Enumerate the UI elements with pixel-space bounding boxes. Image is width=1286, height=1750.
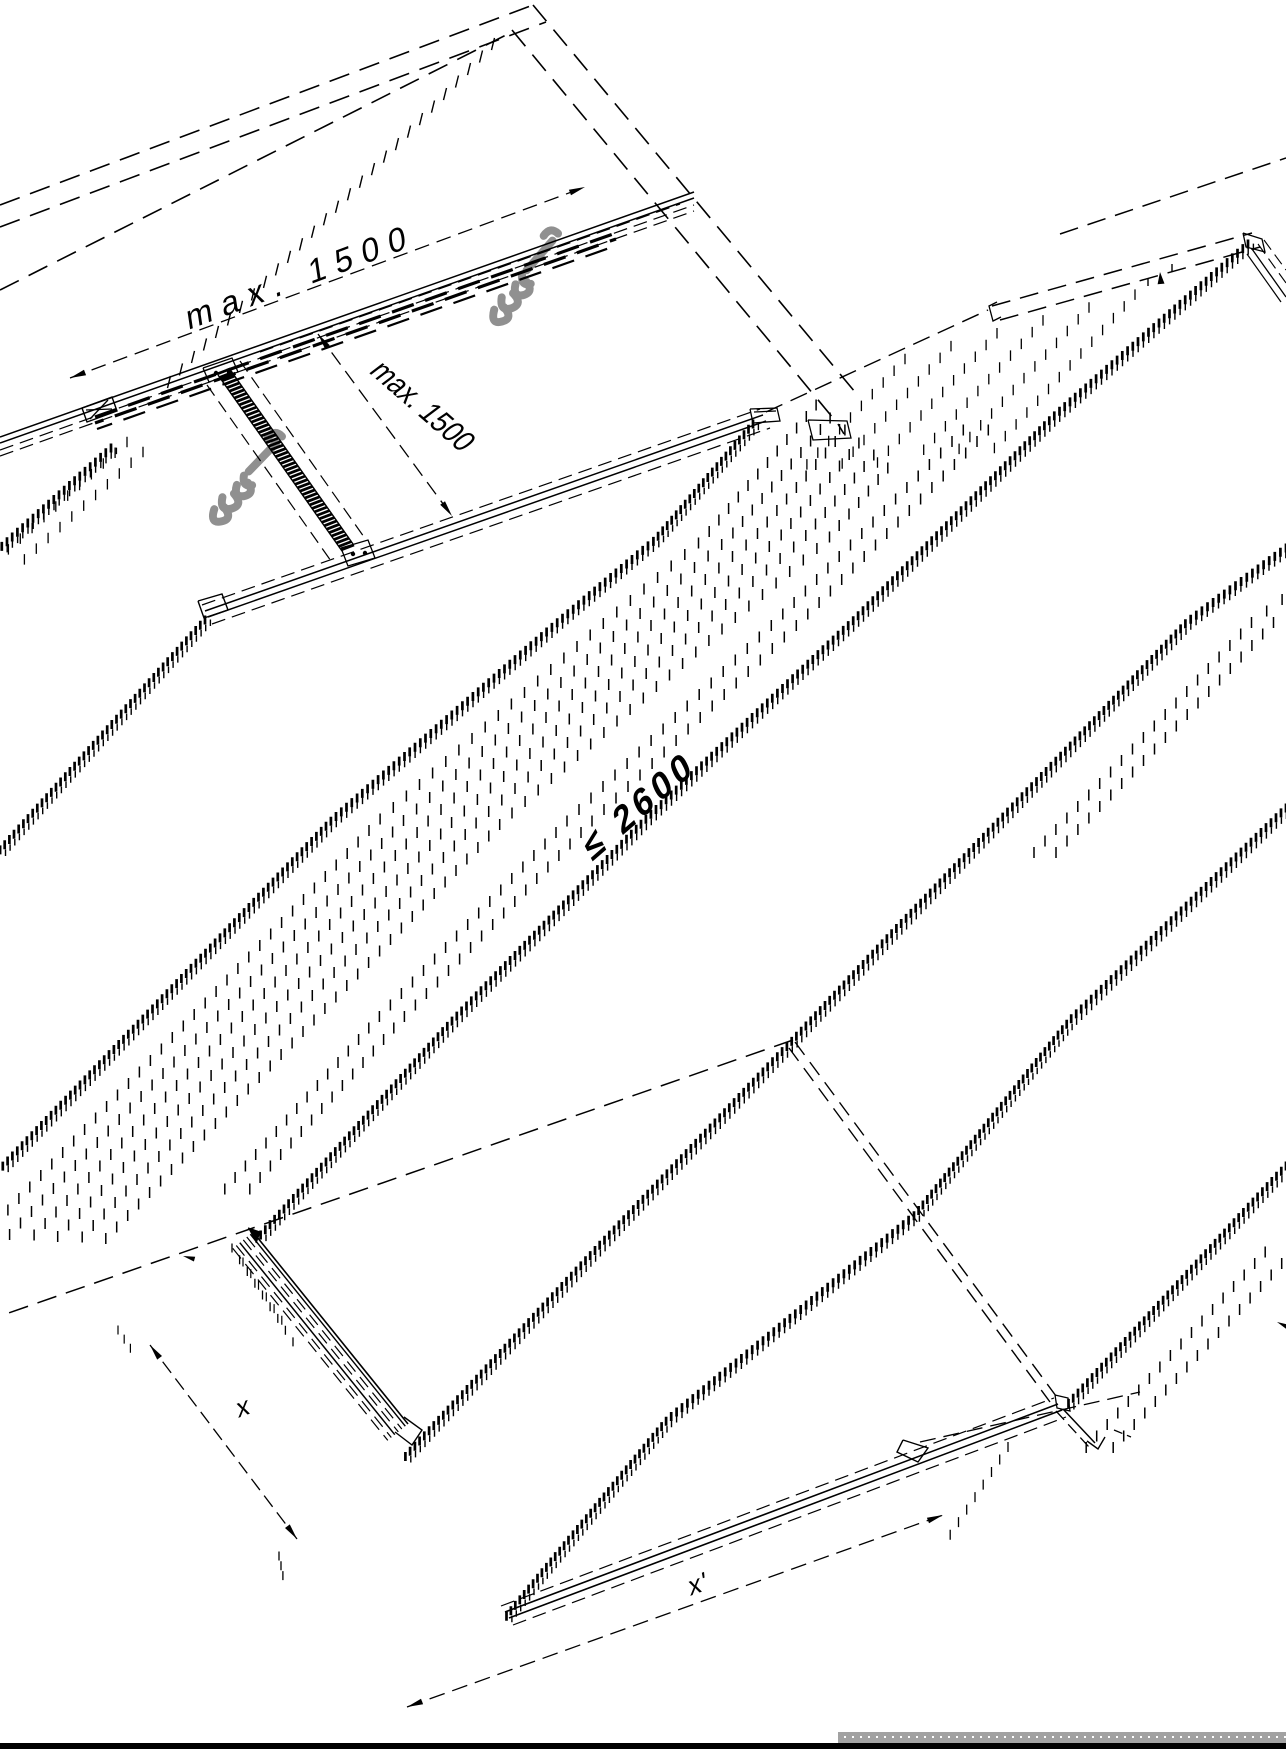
svg-text:x': x' xyxy=(687,1565,710,1602)
svg-text:x: x xyxy=(235,1389,252,1424)
svg-text:max. 1500: max. 1500 xyxy=(362,356,483,458)
svg-text:≤ 2600: ≤ 2600 xyxy=(577,740,701,869)
svg-text:max. 1500: max. 1500 xyxy=(184,216,418,338)
